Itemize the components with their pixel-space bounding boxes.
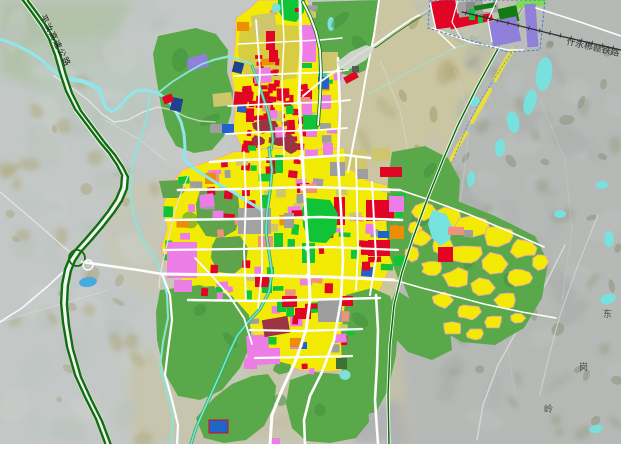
svg-text:东: 东 — [603, 308, 612, 319]
svg-text:岗: 岗 — [579, 362, 588, 372]
svg-text:岭: 岭 — [544, 403, 553, 414]
